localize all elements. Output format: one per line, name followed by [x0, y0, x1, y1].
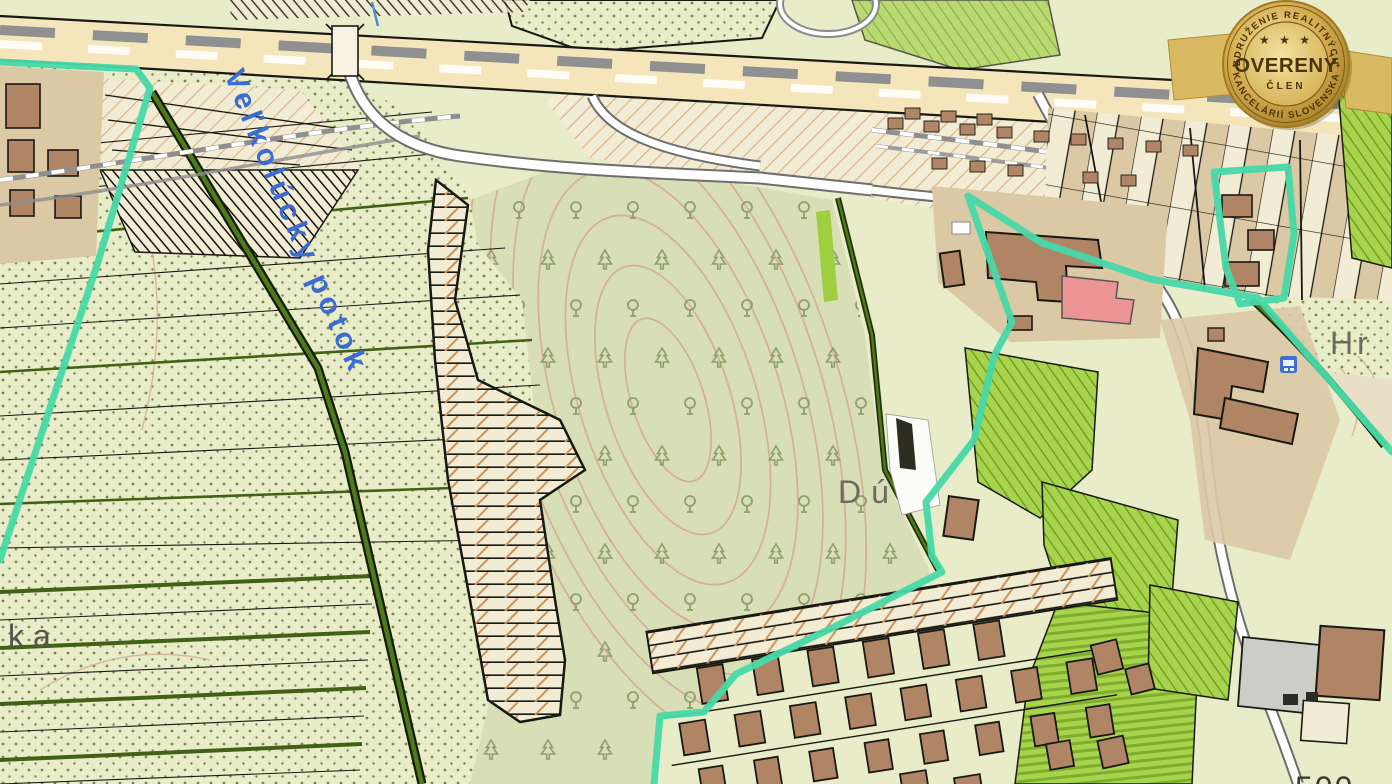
badge-stars: ★ ★ ★	[1259, 33, 1313, 47]
map-image[interactable]: Veľkolúcky potok Dú Hr ka 500 ZDRUŽENIE …	[0, 0, 1392, 784]
place-label-ka: ka	[8, 618, 60, 654]
badge-subtitle: ČLEN	[1266, 79, 1305, 92]
parcel-number-label: 500	[1295, 770, 1354, 784]
place-label-du: Dú	[838, 474, 899, 510]
bus-stop-icon	[1280, 356, 1297, 373]
badge-title: OVERENÝ	[1234, 53, 1338, 77]
bridge-icon	[326, 24, 364, 80]
map-canvas: Veľkolúcky potok Dú Hr ka 500 ZDRUŽENIE …	[0, 0, 1392, 784]
place-label-hr: Hr	[1330, 325, 1372, 361]
